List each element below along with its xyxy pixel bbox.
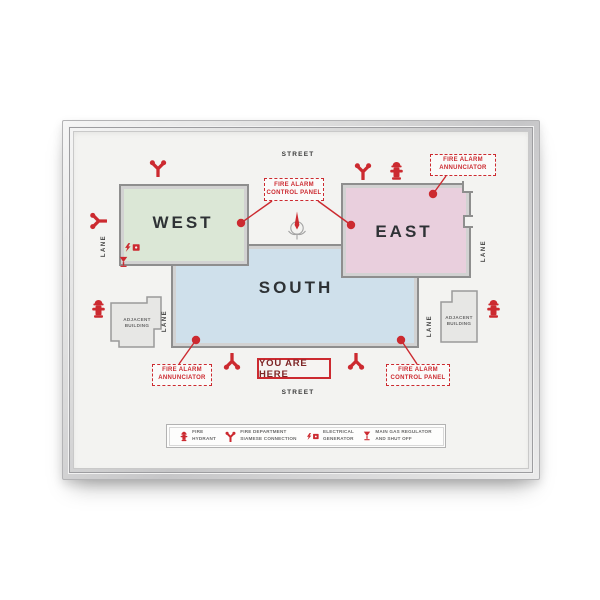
legend-label: MAIN GAS REGULATOR AND SHUT OFF (375, 429, 432, 443)
callout-line2: CONTROL PANEL (390, 375, 445, 383)
callout-line1: FIRE ALARM (162, 367, 202, 375)
street-label-top: STREET (258, 151, 338, 158)
building-east-corner-notch (462, 181, 473, 193)
siamese-connection-icon (89, 212, 107, 230)
legend-item-gas-regulator: MAIN GAS REGULATOR AND SHUT OFF (363, 429, 432, 443)
map-surface: STREET STREET LANE LANE LANE LANE WEST E… (73, 131, 529, 469)
building-east-label: EAST (344, 222, 464, 242)
callout-line1: FIRE ALARM (274, 182, 314, 190)
adjacent-line2: BUILDING (447, 321, 472, 326)
gas-regulator-icon (363, 431, 371, 441)
legend-label-line2: HYDRANT (192, 436, 216, 443)
lane-label-west-outer: LANE (99, 231, 109, 261)
lane-label-east-outer: LANE (479, 236, 489, 266)
you-are-here-marker: YOU ARE HERE (257, 358, 331, 379)
fire-hydrant-icon (180, 431, 188, 442)
fire-alarm-control-panel-callout-top: FIRE ALARM CONTROL PANEL (264, 178, 324, 201)
fire-hydrant-icon (91, 299, 106, 319)
legend-label: FIRE DEPARTMENT SIAMESE CONNECTION (240, 429, 296, 443)
fire-alarm-control-panel-callout-bottomright: FIRE ALARM CONTROL PANEL (386, 364, 450, 386)
legend-label-line1: FIRE DEPARTMENT (240, 429, 296, 436)
legend-item-fire-hydrant: FIRE HYDRANT (180, 429, 216, 443)
photo-of-framed-evacuation-map: STREET STREET LANE LANE LANE LANE WEST E… (0, 0, 600, 600)
lane-label-west-inner: LANE (160, 306, 170, 336)
electrical-generator-icon (124, 243, 140, 252)
legend-bar: FIRE HYDRANT FIRE DEPARTMENT SIAMESE CON… (166, 424, 446, 448)
legend-item-siamese-connection: FIRE DEPARTMENT SIAMESE CONNECTION (225, 429, 296, 443)
fire-hydrant-icon (389, 161, 404, 181)
legend-label: FIRE HYDRANT (192, 429, 216, 443)
callout-line2: ANNUNCIATOR (158, 375, 205, 383)
electrical-generator-icon (306, 433, 319, 440)
compass-icon (286, 211, 308, 241)
legend-label: ELECTRICAL GENERATOR (323, 429, 354, 443)
legend-item-electrical-generator: ELECTRICAL GENERATOR (306, 429, 354, 443)
siamese-connection-icon (149, 159, 167, 177)
legend-label-line2: SIAMESE CONNECTION (240, 436, 296, 443)
legend-label-line2: GENERATOR (323, 436, 354, 443)
adjacent-line1: ADJACENT (123, 317, 150, 322)
siamese-connection-icon (347, 353, 365, 371)
legend-label-line1: ELECTRICAL (323, 429, 354, 436)
fire-hydrant-icon (486, 299, 501, 319)
callout-line1: FIRE ALARM (443, 157, 483, 165)
siamese-connection-icon (354, 162, 372, 180)
callout-line2: ANNUNCIATOR (439, 165, 486, 173)
fire-alarm-annunciator-callout-bottomleft: FIRE ALARM ANNUNCIATOR (152, 364, 212, 386)
legend-label-line1: FIRE (192, 429, 216, 436)
adjacent-building-left-label: ADJACENT BUILDING (113, 317, 161, 329)
legend-label-line2: AND SHUT OFF (375, 436, 432, 443)
building-south-label: SOUTH (236, 278, 356, 298)
legend-items: FIRE HYDRANT FIRE DEPARTMENT SIAMESE CON… (169, 427, 444, 446)
adjacent-line1: ADJACENT (445, 315, 472, 320)
legend-label-line1: MAIN GAS REGULATOR (375, 429, 432, 436)
lane-label-east-inner: LANE (425, 311, 435, 341)
building-west-label: WEST (123, 213, 243, 233)
callout-line2: CONTROL PANEL (266, 190, 321, 198)
callout-line1: FIRE ALARM (398, 367, 438, 375)
adjacent-building-right-label: ADJACENT BUILDING (435, 315, 483, 327)
building-east-edge-notch (463, 215, 473, 228)
siamese-connection-icon (225, 431, 236, 442)
fire-alarm-annunciator-callout-topright: FIRE ALARM ANNUNCIATOR (430, 154, 496, 176)
gas-regulator-icon (119, 256, 128, 268)
adjacent-line2: BUILDING (125, 323, 150, 328)
siamese-connection-icon (223, 353, 241, 371)
street-label-bottom: STREET (258, 389, 338, 396)
poster-frame: STREET STREET LANE LANE LANE LANE WEST E… (62, 120, 540, 480)
